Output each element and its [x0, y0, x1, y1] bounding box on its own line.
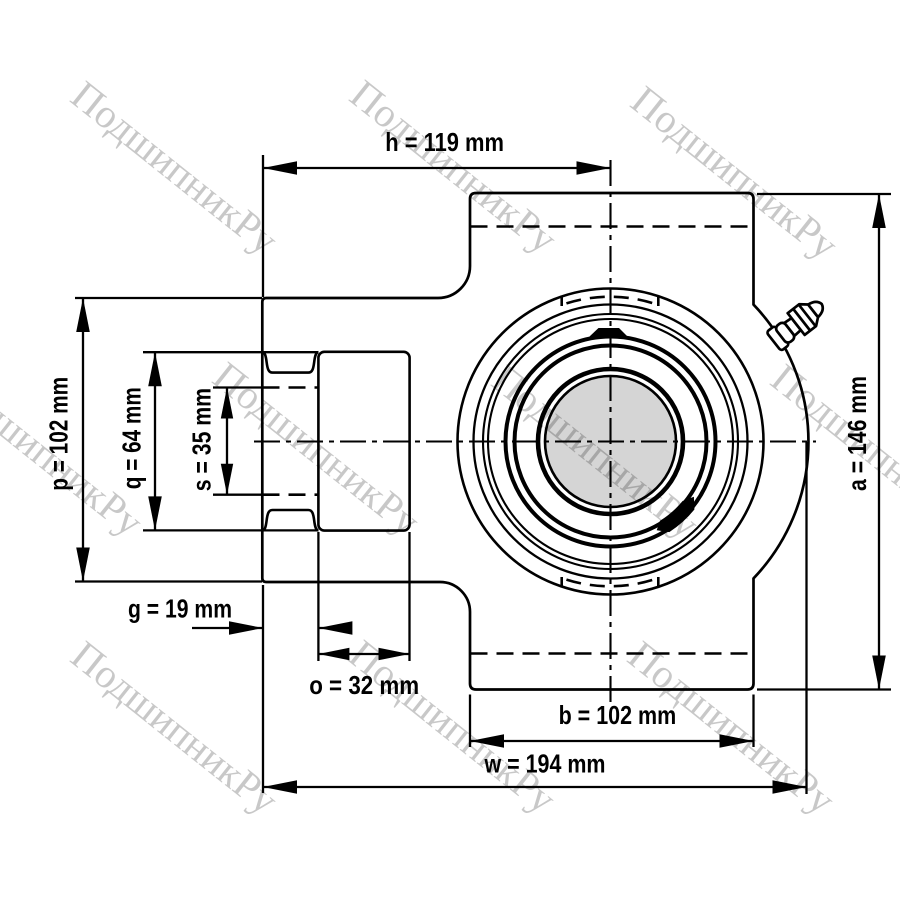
svg-text:g = 19 mm: g = 19 mm [128, 593, 232, 623]
svg-text:b = 102 mm: b = 102 mm [559, 700, 677, 730]
svg-text:q = 64 mm: q = 64 mm [117, 387, 147, 489]
svg-text:s = 35 mm: s = 35 mm [187, 388, 217, 491]
